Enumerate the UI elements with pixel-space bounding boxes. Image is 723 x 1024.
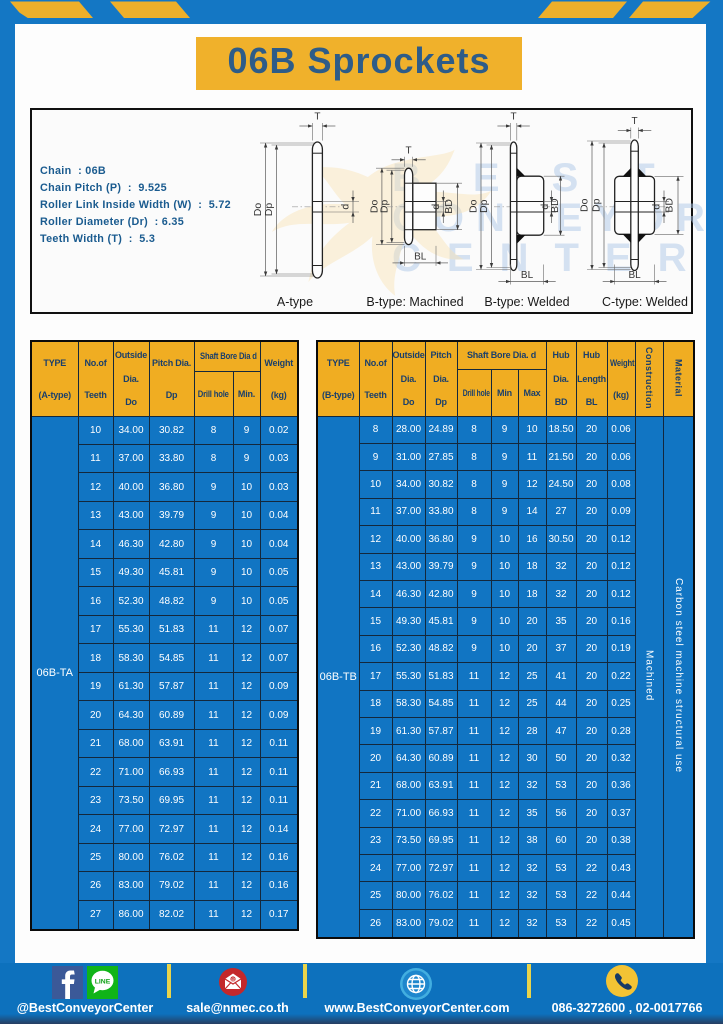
svg-text:BD: BD	[549, 198, 561, 213]
svg-text:T: T	[511, 112, 517, 123]
svg-text:d: d	[340, 204, 352, 210]
svg-text:A-type: A-type	[277, 295, 313, 309]
svg-text:Dp: Dp	[378, 200, 390, 214]
svg-text:d: d	[651, 204, 663, 210]
svg-text:BD: BD	[664, 198, 676, 213]
svg-text:Dp: Dp	[478, 199, 490, 213]
svg-text:T: T	[406, 145, 412, 156]
svg-text:BL: BL	[521, 270, 534, 281]
svg-text:Dp: Dp	[263, 203, 275, 217]
svg-text:B-type: Machined: B-type: Machined	[366, 295, 463, 309]
svg-text:T: T	[631, 116, 637, 127]
svg-text:BL: BL	[628, 270, 641, 281]
svg-text:@: @	[231, 977, 236, 982]
svg-text:Do: Do	[579, 198, 591, 212]
svg-text:Dp: Dp	[591, 198, 603, 212]
svg-text:T: T	[314, 112, 320, 123]
svg-text:BD: BD	[443, 199, 455, 214]
svg-text:d: d	[430, 204, 442, 210]
svg-text:BL: BL	[414, 251, 427, 262]
svg-text:LINE: LINE	[95, 979, 111, 986]
svg-text:C-type: Welded: C-type: Welded	[602, 295, 688, 309]
svg-text:B-type: Welded: B-type: Welded	[484, 295, 569, 309]
